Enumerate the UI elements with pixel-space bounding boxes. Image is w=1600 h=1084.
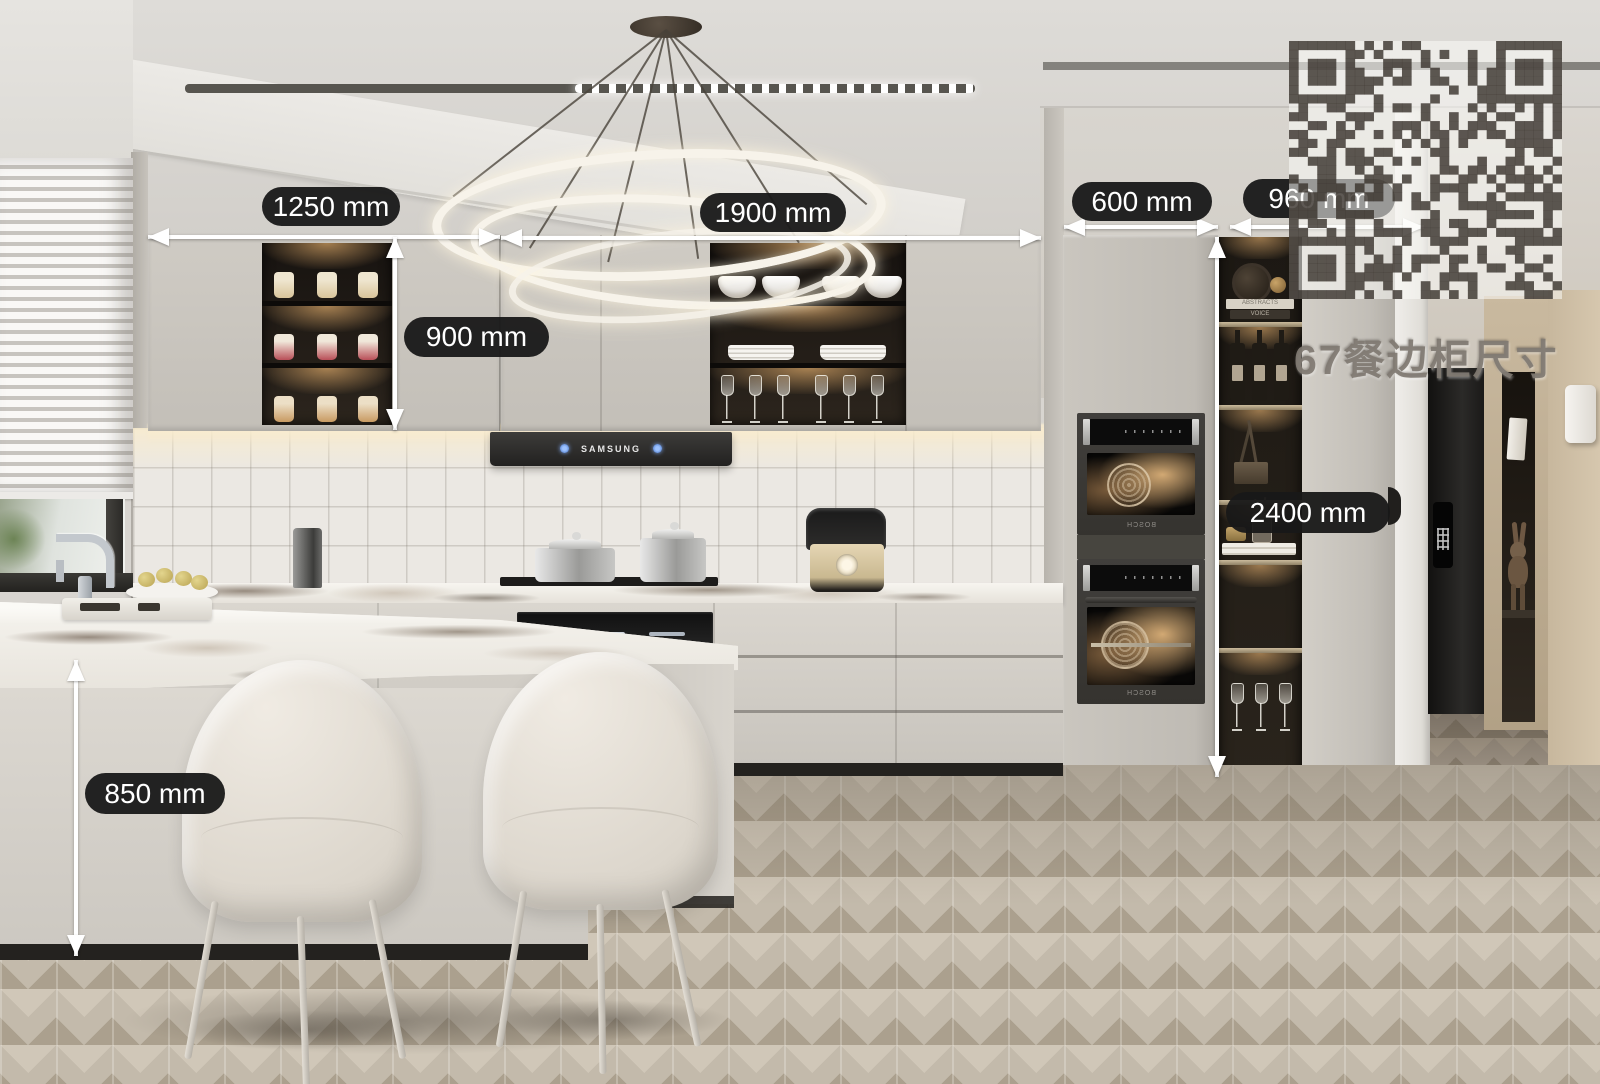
chair-leg [496,890,528,1047]
arrowhead-up [386,237,404,258]
shelf-compartment [1218,410,1302,500]
jar [317,272,337,298]
arrowhead-down [1208,756,1226,777]
oven-hinge [1192,565,1199,591]
open-shelf-left [262,243,392,425]
oven-window [1087,453,1195,515]
niche-shelf [1502,610,1535,618]
arrowhead-up [1208,237,1226,258]
dining-chair-left [172,660,437,1040]
figurine-sculpture [1247,420,1258,464]
bosch-logo: BOSCH [1077,690,1205,697]
wine-glass [776,375,789,423]
wall-left [0,0,133,162]
chair-leg [369,899,407,1059]
jar [358,334,378,360]
window-blinds [0,158,133,494]
jar [358,396,378,422]
wine-bottle [1252,343,1267,401]
wine-glass [870,375,883,423]
dimension-arrow-1900 [501,236,1041,240]
shelf-compartment [262,243,392,301]
ceiling-led-strip [575,84,975,93]
arrowhead-right [1197,218,1218,236]
jar [317,396,337,422]
drawer-line [713,710,1063,713]
dining-chair-right [478,652,728,1032]
gold-sphere-decor [1270,277,1286,293]
built-in-oven-top: BOSCH [1077,413,1205,535]
tray-item [80,603,120,611]
chair-leg [184,901,219,1060]
dimension-label-2400: 2400 mm [1226,492,1390,533]
cabinet-seam [895,603,897,765]
dimension-arrow-2400 [1215,237,1219,777]
jar [358,272,378,298]
book-spine: ABSTRACTS [1226,299,1294,309]
shelf-compartment [1218,565,1302,648]
jar [317,334,337,360]
dimension-label-1900: 1900 mm [700,193,846,232]
plate-stack [820,345,886,360]
towel [1565,385,1596,443]
arrowhead-down [67,935,85,956]
back-countertop [133,583,1063,603]
hood-light [560,444,569,453]
shelf-compartment [710,368,906,425]
dimension-label-1250: 1250 mm [262,187,400,226]
wine-bottle [1274,343,1289,401]
stock-pot [535,548,615,582]
oven-fan [1107,463,1151,507]
book-spine: VOICE [1230,310,1290,319]
plate-stack [728,345,794,360]
dimension-arrow-1250 [148,235,500,239]
wine-glass [1254,683,1267,731]
serving-tray [62,598,212,620]
arrowhead-left [1230,218,1251,236]
hood-light [653,444,662,453]
wine-glass [842,375,855,423]
wire-sphere-decor [1232,263,1272,303]
smart-lock [1433,502,1453,568]
shelf-compartment [1218,327,1302,405]
book-decor [1507,417,1528,460]
oven-window [1087,607,1195,685]
fruit [156,568,173,583]
jar [274,272,294,298]
wine-bottle [1230,343,1245,401]
shelf-compartment [262,306,392,363]
fruit [138,572,155,587]
faucet-spout [56,560,64,582]
dimension-label-900: 900 mm [404,317,549,357]
wine-glass [748,375,761,423]
rice-cooker [810,544,884,592]
arrowhead-down [386,409,404,430]
shelf-compartment [262,368,392,425]
chair-backrest [483,652,718,910]
shelf-compartment [1218,653,1302,737]
bosch-logo: BOSCH [1077,522,1205,529]
oven-handle [1085,597,1197,603]
shelf-compartment [710,306,906,363]
window-greenery [0,508,46,570]
wine-glass [1278,683,1291,731]
chair-leg [661,889,701,1047]
oven-control-panel [1089,565,1193,591]
arrowhead-right [1020,229,1041,247]
arrowhead-left [148,228,169,246]
tray-item [138,603,160,611]
oven-hinge [1083,419,1090,445]
console-display [649,632,685,636]
range-hood: SAMSUNG [490,432,732,466]
jar [274,334,294,360]
watermark-caption: 67餐边柜尺寸 [1294,326,1559,386]
stock-pot [640,538,706,582]
built-in-oven-bottom: BOSCH [1077,559,1205,704]
rice-cooker-dial [836,554,858,576]
canister [293,528,322,588]
figurine-base [1234,462,1268,484]
qr-code [1289,41,1562,299]
dimension-label-850: 850 mm [85,773,225,814]
oven-rack [1091,643,1191,647]
arrowhead-right [479,228,500,246]
oven-hinge [1083,565,1090,591]
kitchen-scene: SAMSUNG BOSCH BOSCH [0,0,1600,1084]
wine-glass [1230,683,1243,731]
arrowhead-left [501,229,522,247]
arrowhead-left [1064,218,1085,236]
oven-hinge [1192,419,1199,445]
book-stack [1222,543,1296,555]
tall-oven-cabinet: BOSCH BOSCH [1063,235,1218,777]
oven-divider [1077,535,1205,559]
bowl [864,276,902,298]
dimension-arrow-600 [1064,225,1218,229]
drawer-line [713,655,1063,658]
dimension-arrow-900 [393,237,397,430]
fruit [175,571,192,586]
fruit [191,575,208,590]
oven-control-panel [1089,419,1193,445]
dimension-arrow-850 [74,660,78,956]
wine-glass [814,375,827,423]
bunny-sculpture [1506,522,1531,617]
samsung-logo: SAMSUNG [581,444,641,454]
dimension-label-600: 600 mm [1072,182,1212,221]
wall-return [1044,108,1064,588]
jar [274,396,294,422]
blinds-rail [0,492,133,499]
arrowhead-up [67,660,85,681]
wine-glass [720,375,733,423]
